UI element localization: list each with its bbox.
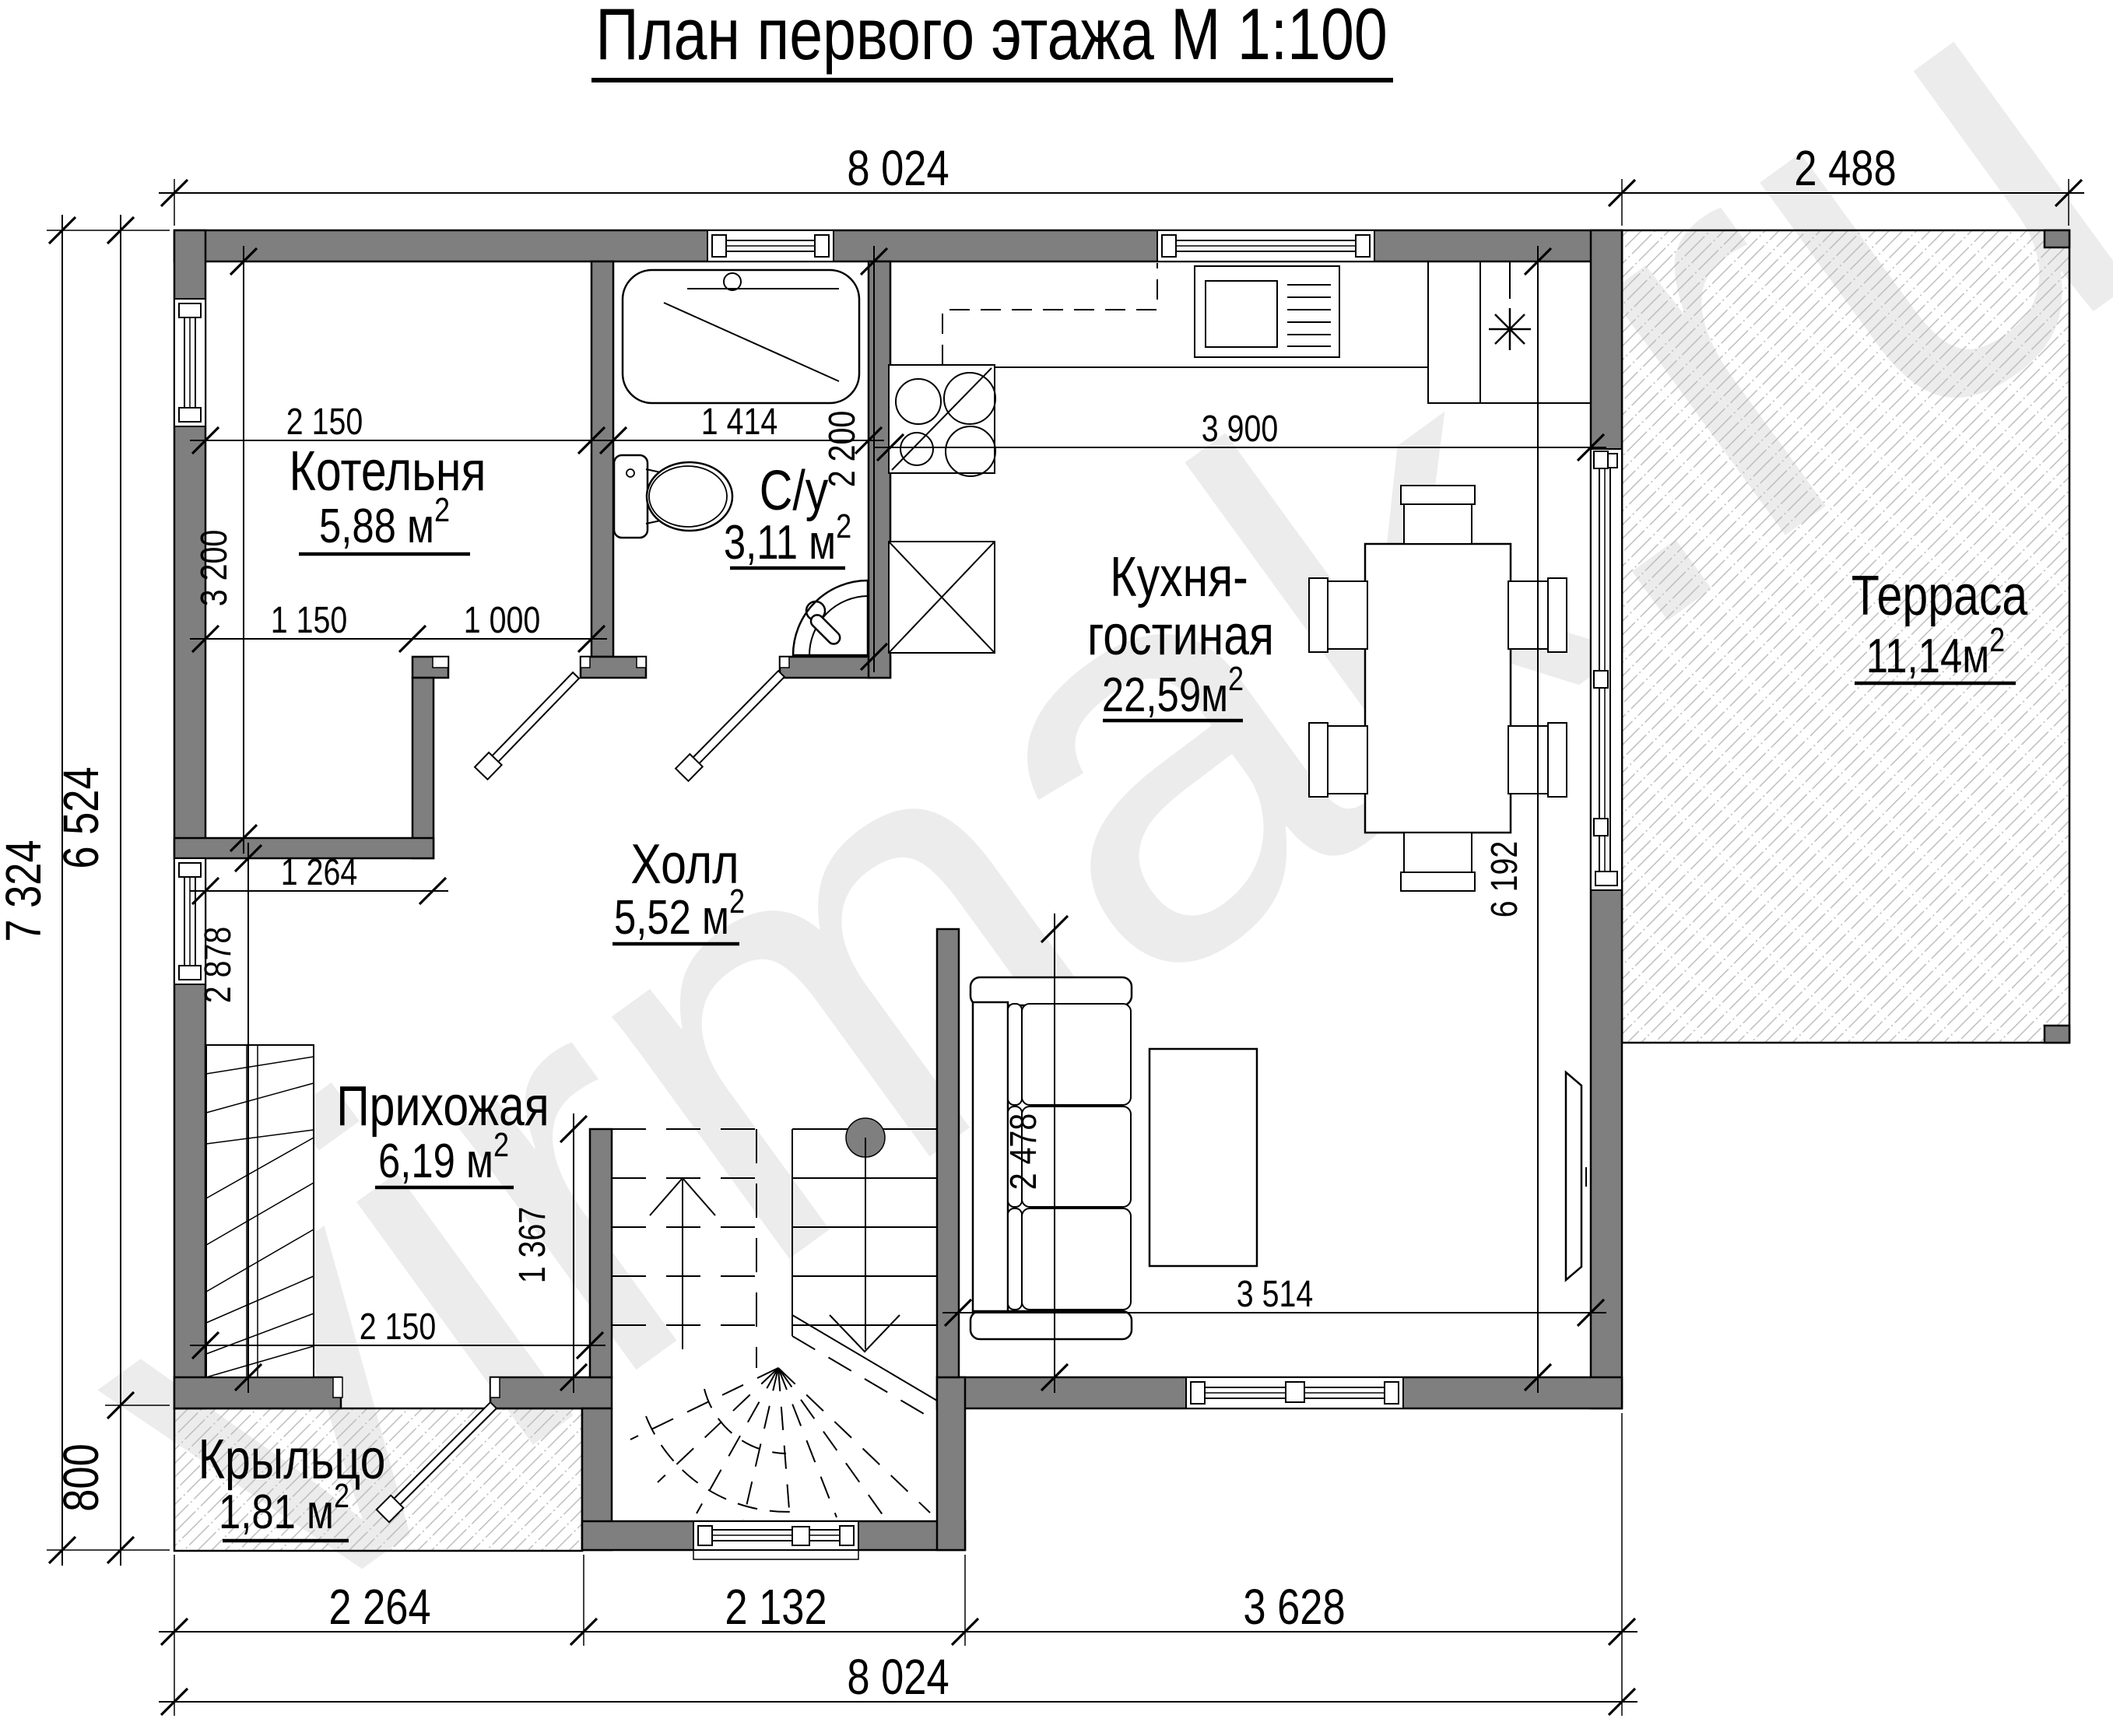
svg-text:Крыльцо: Крыльцо (198, 1427, 386, 1490)
svg-text:Терраса: Терраса (1852, 563, 2028, 626)
svg-text:6 524: 6 524 (54, 766, 109, 868)
svg-text:11,14м2: 11,14м2 (1866, 621, 2005, 684)
svg-text:С/у: С/у (760, 458, 829, 521)
svg-text:2 150: 2 150 (286, 401, 363, 443)
svg-text:Холл: Холл (630, 832, 739, 895)
svg-text:3 900: 3 900 (1202, 408, 1278, 450)
svg-text:1 150: 1 150 (271, 599, 347, 641)
svg-text:5,52 м2: 5,52 м2 (614, 882, 745, 945)
svg-text:3 200: 3 200 (193, 530, 235, 606)
svg-text:3 628: 3 628 (1243, 1580, 1345, 1635)
svg-text:2 488: 2 488 (1794, 141, 1896, 196)
svg-text:2 132: 2 132 (725, 1580, 827, 1635)
svg-text:800: 800 (54, 1443, 109, 1512)
svg-text:гостиная: гостиная (1087, 603, 1274, 666)
svg-text:1 414: 1 414 (701, 401, 777, 443)
svg-text:Прихожая: Прихожая (336, 1074, 549, 1137)
svg-text:8 024: 8 024 (847, 141, 949, 196)
svg-text:6 192: 6 192 (1483, 841, 1525, 917)
svg-text:План первого этажа М 1:100: План первого этажа М 1:100 (595, 0, 1387, 75)
svg-text:8 024: 8 024 (847, 1650, 949, 1705)
svg-text:2 264: 2 264 (328, 1580, 430, 1635)
svg-text:1,81 м2: 1,81 м2 (219, 1477, 349, 1540)
svg-text:Кухня-: Кухня- (1110, 545, 1248, 608)
svg-text:5,88 м2: 5,88 м2 (319, 491, 450, 554)
svg-text:3 514: 3 514 (1237, 1273, 1313, 1315)
svg-text:2 150: 2 150 (360, 1306, 436, 1348)
svg-text:Котельня: Котельня (290, 439, 486, 502)
svg-text:1 367: 1 367 (511, 1207, 553, 1283)
svg-text:1 264: 1 264 (281, 851, 357, 893)
svg-text:22,59м2: 22,59м2 (1102, 660, 1244, 723)
svg-text:6,19 м2: 6,19 м2 (378, 1126, 509, 1189)
svg-text:2 878: 2 878 (197, 927, 239, 1003)
svg-text:7 324: 7 324 (0, 840, 51, 942)
svg-text:1 000: 1 000 (464, 599, 540, 641)
svg-text:2 478: 2 478 (1002, 1113, 1044, 1190)
svg-text:3,11 м2: 3,11 м2 (724, 507, 851, 570)
